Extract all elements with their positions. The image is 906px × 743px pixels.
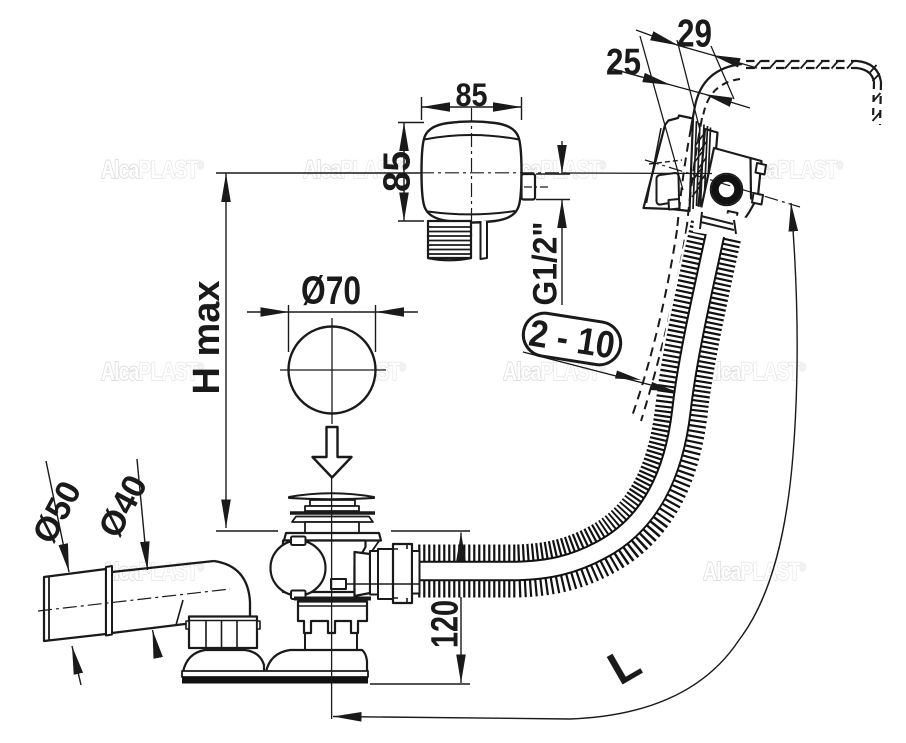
svg-text:25: 25	[606, 42, 641, 83]
svg-text:29: 29	[677, 13, 712, 56]
svg-text:AlcaPLAST®: AlcaPLAST®	[101, 156, 205, 184]
svg-text:L: L	[599, 636, 649, 695]
svg-text:AlcaPLAST®: AlcaPLAST®	[703, 358, 807, 386]
svg-text:Ø70: Ø70	[301, 269, 361, 313]
svg-text:Ø50: Ø50	[25, 475, 89, 550]
svg-text:H max: H max	[186, 280, 228, 394]
svg-text:85: 85	[377, 151, 419, 192]
svg-text:G1/2": G1/2"	[527, 222, 565, 306]
svg-text:AlcaPLAST®: AlcaPLAST®	[703, 558, 807, 586]
svg-text:Ø40: Ø40	[91, 469, 155, 544]
svg-text:85: 85	[456, 77, 488, 113]
svg-text:120: 120	[425, 600, 467, 648]
